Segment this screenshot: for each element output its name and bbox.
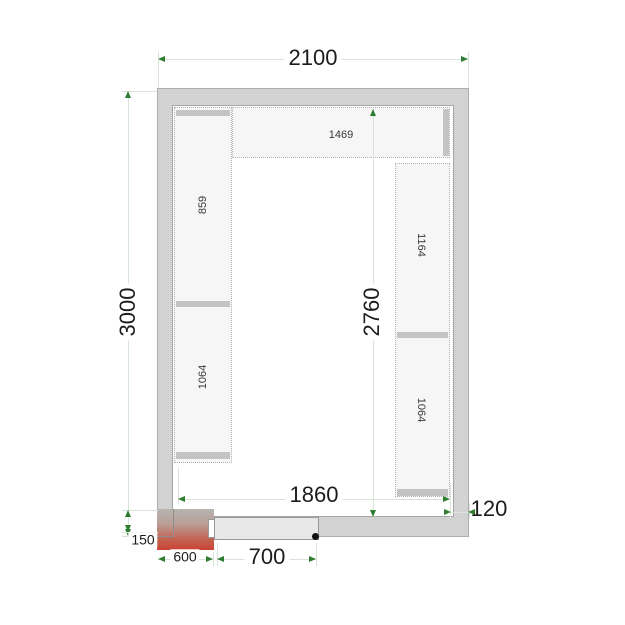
arrowhead-right	[443, 496, 450, 502]
door-leaf	[214, 517, 319, 540]
door-handle-dot	[312, 533, 319, 540]
dim-heater-depth-label: 150	[128, 532, 157, 547]
cold-room-floor-plan: 1469 859 1064 1164 1064 2100 3000 2760 1…	[0, 0, 625, 625]
arrowhead-down	[125, 525, 131, 532]
arrowhead-left	[158, 556, 165, 562]
arrowhead-right	[309, 556, 316, 562]
shelf-divider	[176, 301, 230, 307]
arrowhead-right	[206, 556, 213, 562]
arrowhead-left	[217, 556, 224, 562]
shelf-label-right-upper: 1164	[415, 233, 427, 257]
arrowhead-left	[178, 496, 185, 502]
extension-line	[316, 543, 317, 566]
arrowhead-up	[370, 109, 376, 116]
shelf-right-column	[395, 163, 450, 497]
dim-outer-height-label: 3000	[116, 284, 140, 341]
shelf-left-column	[174, 107, 232, 463]
shelf-label-left-upper: 859	[197, 196, 209, 214]
shelf-label-right-lower: 1064	[415, 398, 427, 422]
dim-inner-width-label: 1860	[286, 483, 343, 507]
wall-corner-line	[173, 509, 174, 537]
dim-door-width-label: 700	[245, 545, 290, 569]
shelf-endcap	[176, 110, 230, 116]
arrowhead-right	[461, 56, 468, 62]
dim-wall-thickness-label: 120	[467, 497, 512, 521]
door-frame-heater-zone	[157, 509, 214, 550]
arrowhead-down	[370, 510, 376, 517]
shelf-endcap	[443, 109, 449, 156]
shelf-endcap	[397, 489, 448, 496]
arrowhead-up	[125, 510, 131, 517]
arrowhead-up	[125, 91, 131, 98]
arrowhead-left	[158, 56, 165, 62]
shelf-divider	[397, 332, 448, 338]
extension-line	[213, 552, 214, 566]
dim-inner-height-label: 2760	[360, 284, 384, 341]
shelf-endcap	[176, 452, 230, 459]
shelf-label-top: 1469	[329, 129, 353, 141]
extension-line	[468, 52, 469, 88]
arrowhead-right	[444, 509, 451, 515]
dim-heater-width-label: 600	[170, 549, 199, 564]
wall-corner-line	[157, 536, 174, 537]
dim-outer-width-label: 2100	[285, 46, 342, 70]
shelf-label-left-lower: 1064	[197, 365, 209, 389]
extension-line	[217, 543, 218, 566]
